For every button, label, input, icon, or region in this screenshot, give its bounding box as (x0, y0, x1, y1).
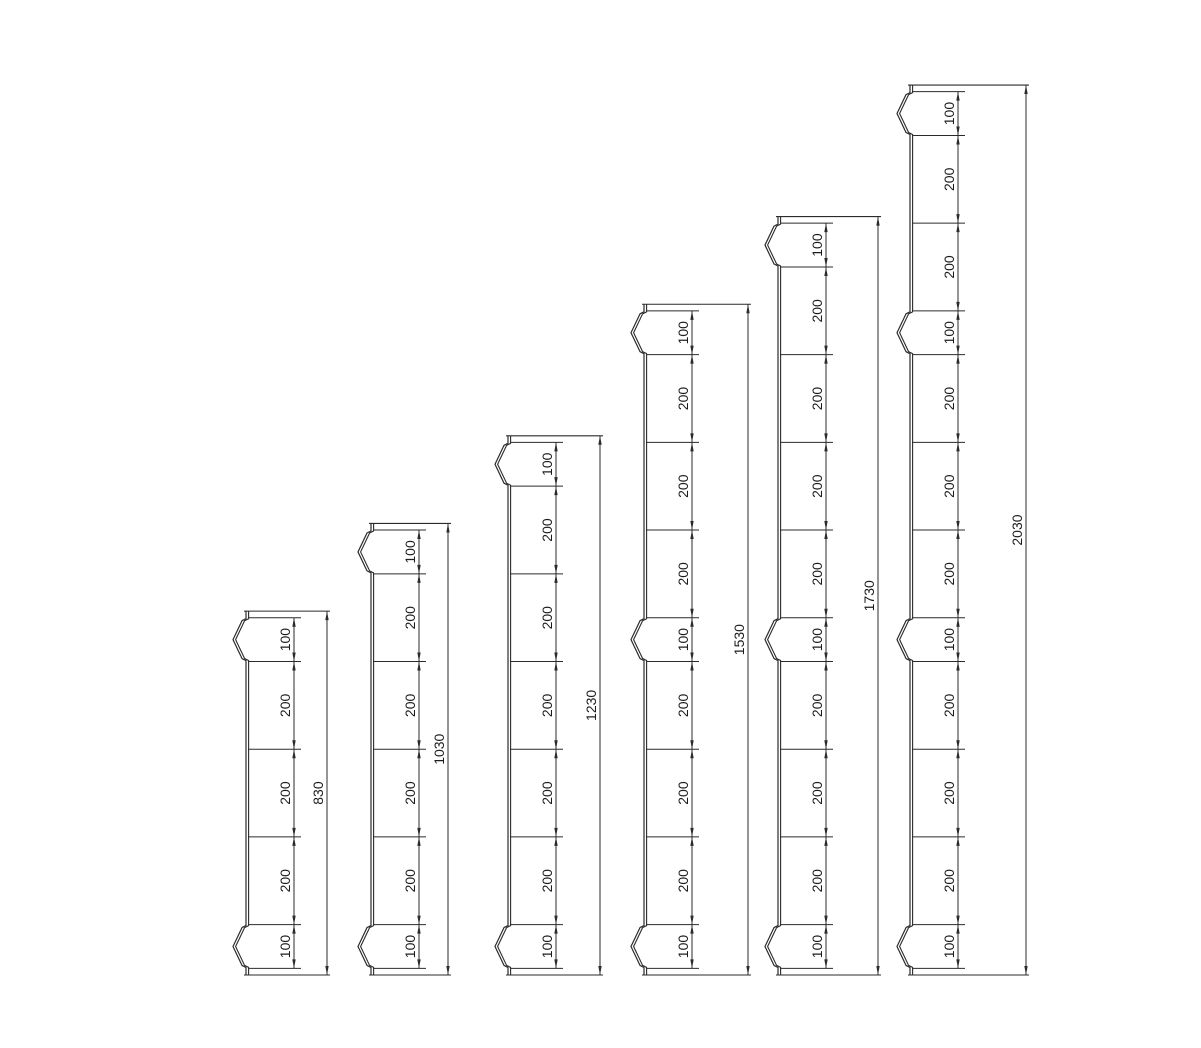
segment-dimension-label: 100 (402, 540, 418, 564)
profile-outline-outer (631, 304, 644, 975)
segment-dimension-label: 200 (402, 693, 418, 717)
post-profile-830: 100200200200100830 (233, 611, 330, 975)
dimension-arrowhead (876, 217, 879, 226)
dimension-arrowhead (956, 433, 959, 442)
dimension-arrowhead (956, 346, 959, 355)
segment-dimension-label: 200 (809, 387, 825, 411)
segment-dimension-label: 200 (941, 562, 957, 586)
dimension-arrowhead (554, 837, 557, 846)
dimension-arrowhead (956, 837, 959, 846)
dimension-arrowhead (417, 828, 420, 837)
dimension-arrowhead (690, 530, 693, 539)
segment-dimension-label: 100 (941, 102, 957, 126)
dimension-arrowhead (325, 966, 328, 975)
dimension-arrowhead (554, 574, 557, 583)
post-profile-1730: 1002002002002001002002002001001730 (765, 217, 881, 975)
dimension-arrowhead (824, 740, 827, 749)
segment-dimension-label: 200 (277, 781, 293, 805)
overall-dimension-label: 830 (310, 781, 326, 805)
dimension-arrowhead (956, 828, 959, 837)
dimension-arrowhead (956, 442, 959, 451)
dimension-arrowhead (956, 749, 959, 758)
segment-dimension-label: 200 (809, 869, 825, 893)
post-profile-1030: 1002002002002001001030 (358, 523, 451, 975)
dimension-arrowhead (956, 740, 959, 749)
dimension-arrowhead (554, 662, 557, 671)
segment-dimension-label: 200 (675, 869, 691, 893)
dimension-arrowhead (690, 521, 693, 530)
dimension-arrowhead (417, 574, 420, 583)
dimension-arrowhead (956, 662, 959, 671)
segment-dimension-label: 100 (539, 935, 555, 959)
segment-dimension-label: 200 (941, 781, 957, 805)
dimension-arrowhead (292, 653, 295, 662)
segment-dimension-label: 200 (675, 781, 691, 805)
dimension-arrowhead (690, 311, 693, 320)
dimension-arrowhead (417, 959, 420, 968)
profile-outline-inner (498, 436, 511, 975)
profile-outline-outer (233, 611, 246, 975)
dimension-arrowhead (956, 916, 959, 925)
dimension-arrowhead (690, 837, 693, 846)
dimension-arrowhead (956, 521, 959, 530)
dimension-arrowhead (292, 662, 295, 671)
dimension-arrowhead (554, 653, 557, 662)
dimension-arrowhead (1024, 966, 1027, 975)
profile-outline-inner (361, 523, 374, 975)
overall-dimension-label: 1730 (861, 580, 877, 611)
dimension-arrowhead (690, 662, 693, 671)
dimension-arrowhead (956, 135, 959, 144)
dimension-arrowhead (417, 740, 420, 749)
dimension-arrowhead (824, 258, 827, 267)
dimension-arrowhead (746, 966, 749, 975)
dimension-arrowhead (824, 346, 827, 355)
segment-dimension-label: 100 (675, 321, 691, 345)
profile-outline-inner (768, 217, 781, 975)
segment-dimension-label: 200 (539, 781, 555, 805)
dimension-arrowhead (292, 618, 295, 627)
dimension-arrowhead (554, 442, 557, 451)
dimension-arrowhead (554, 925, 557, 934)
segment-dimension-label: 100 (277, 935, 293, 959)
segment-dimension-label: 200 (539, 869, 555, 893)
segment-dimension-label: 200 (941, 387, 957, 411)
segment-dimension-label: 100 (675, 628, 691, 652)
dimension-arrowhead (956, 959, 959, 968)
segment-dimension-label: 200 (402, 606, 418, 630)
overall-dimension-label: 1230 (583, 690, 599, 721)
dimension-arrowhead (690, 609, 693, 618)
post-profile-1230: 1002002002002002001001230 (495, 436, 603, 975)
dimension-arrowhead (417, 653, 420, 662)
dimension-arrowhead (598, 436, 601, 445)
dimension-arrowhead (554, 828, 557, 837)
dimension-arrowhead (292, 740, 295, 749)
dimension-arrowhead (690, 433, 693, 442)
segment-dimension-label: 200 (675, 693, 691, 717)
dimension-arrowhead (956, 214, 959, 223)
segment-dimension-label: 200 (941, 869, 957, 893)
dimension-arrowhead (956, 618, 959, 627)
segment-dimension-label: 200 (809, 781, 825, 805)
overall-dimension-label: 1030 (431, 733, 447, 764)
dimension-arrowhead (1024, 85, 1027, 94)
dimension-arrowhead (956, 302, 959, 311)
dimension-arrowhead (292, 916, 295, 925)
segment-dimension-label: 200 (277, 869, 293, 893)
profile-outline-outer (765, 217, 778, 975)
dimension-arrowhead (824, 442, 827, 451)
dimension-arrowhead (690, 442, 693, 451)
segment-dimension-label: 200 (539, 693, 555, 717)
segment-dimension-label: 100 (675, 935, 691, 959)
dimension-arrowhead (824, 837, 827, 846)
dimension-arrowhead (956, 925, 959, 934)
segment-dimension-label: 200 (539, 606, 555, 630)
dimension-arrowhead (554, 565, 557, 574)
dimension-arrowhead (554, 959, 557, 968)
dimension-arrowhead (956, 92, 959, 101)
dimension-arrowhead (956, 223, 959, 232)
dimension-arrowhead (824, 925, 827, 934)
profile-outline-inner (900, 85, 913, 975)
dimension-arrowhead (417, 837, 420, 846)
dimension-arrowhead (824, 267, 827, 276)
dimension-arrowhead (690, 355, 693, 364)
segment-dimension-label: 200 (809, 474, 825, 498)
dimension-arrowhead (417, 749, 420, 758)
dimension-arrowhead (417, 916, 420, 925)
segment-dimension-label: 200 (809, 299, 825, 323)
profile-outline-outer (897, 85, 910, 975)
segment-dimension-label: 100 (941, 935, 957, 959)
dimension-arrowhead (956, 126, 959, 135)
dimension-arrowhead (824, 749, 827, 758)
dimension-arrowhead (554, 740, 557, 749)
segment-dimension-label: 100 (539, 452, 555, 476)
segment-dimension-label: 100 (941, 628, 957, 652)
dimension-arrowhead (956, 609, 959, 618)
dimension-arrowhead (554, 749, 557, 758)
dimension-arrowhead (292, 959, 295, 968)
dimension-arrowhead (824, 662, 827, 671)
segment-dimension-label: 100 (941, 321, 957, 345)
profile-outline-outer (358, 523, 371, 975)
dimension-arrowhead (417, 925, 420, 934)
segment-dimension-label: 100 (809, 233, 825, 257)
dimension-arrowhead (824, 653, 827, 662)
dimension-arrowhead (446, 523, 449, 532)
dimension-arrowhead (746, 304, 749, 313)
dimension-arrowhead (824, 223, 827, 232)
dimension-arrowhead (417, 662, 420, 671)
dimension-arrowhead (824, 521, 827, 530)
dimension-arrowhead (417, 565, 420, 574)
dimension-arrowhead (690, 959, 693, 968)
dimension-arrowhead (876, 966, 879, 975)
dimension-arrowhead (690, 618, 693, 627)
dimension-arrowhead (956, 530, 959, 539)
segment-dimension-label: 100 (402, 935, 418, 959)
profile-outline-inner (236, 611, 249, 975)
dimension-arrowhead (690, 925, 693, 934)
segment-dimension-label: 200 (402, 869, 418, 893)
segment-dimension-label: 200 (675, 562, 691, 586)
dimension-arrowhead (690, 740, 693, 749)
post-profile-2030: 1002002001002002002001002002002001002030 (897, 85, 1029, 975)
dimension-arrowhead (824, 530, 827, 539)
dimension-arrowhead (292, 925, 295, 934)
post-profile-1530: 1002002002001002002002001001530 (631, 304, 751, 975)
dimension-arrowhead (824, 618, 827, 627)
profile-outline-inner (634, 304, 647, 975)
dimension-arrowhead (554, 486, 557, 495)
dimension-arrowhead (554, 477, 557, 486)
dimension-arrowhead (824, 959, 827, 968)
dimension-arrowhead (824, 828, 827, 837)
profile-outline-outer (495, 436, 508, 975)
dimension-arrowhead (824, 916, 827, 925)
segment-dimension-label: 100 (277, 628, 293, 652)
dimension-arrowhead (690, 346, 693, 355)
segment-dimension-label: 200 (941, 693, 957, 717)
segment-dimension-label: 200 (941, 167, 957, 191)
dimension-arrowhead (554, 916, 557, 925)
dimension-arrowhead (824, 355, 827, 364)
drawing-canvas: 1002002002001008301002002002002001001030… (0, 0, 1201, 1048)
dimension-arrowhead (824, 609, 827, 618)
dimension-arrowhead (690, 828, 693, 837)
dimension-arrowhead (956, 311, 959, 320)
segment-dimension-label: 200 (402, 781, 418, 805)
dimension-arrowhead (292, 837, 295, 846)
dimension-arrowhead (690, 916, 693, 925)
segment-dimension-label: 100 (809, 935, 825, 959)
segment-dimension-label: 200 (539, 518, 555, 542)
dimension-arrowhead (292, 749, 295, 758)
dimension-arrowhead (446, 966, 449, 975)
segment-dimension-label: 200 (809, 562, 825, 586)
segment-dimension-label: 200 (809, 693, 825, 717)
dimension-arrowhead (956, 355, 959, 364)
dimension-arrowhead (292, 828, 295, 837)
overall-dimension-label: 1530 (731, 624, 747, 655)
segment-dimension-label: 200 (675, 474, 691, 498)
dimension-arrowhead (417, 530, 420, 539)
overall-dimension-label: 2030 (1009, 514, 1025, 545)
segment-dimension-label: 200 (941, 255, 957, 279)
dimension-arrowhead (325, 611, 328, 620)
segment-dimension-label: 100 (809, 628, 825, 652)
segment-dimension-label: 200 (675, 387, 691, 411)
segment-dimension-label: 200 (277, 693, 293, 717)
technical-drawing-svg: 1002002002001008301002002002002001001030… (0, 0, 1201, 1048)
dimension-arrowhead (690, 653, 693, 662)
dimension-arrowhead (824, 433, 827, 442)
segment-dimension-label: 200 (941, 474, 957, 498)
dimension-arrowhead (690, 749, 693, 758)
dimension-arrowhead (598, 966, 601, 975)
dimension-arrowhead (956, 653, 959, 662)
